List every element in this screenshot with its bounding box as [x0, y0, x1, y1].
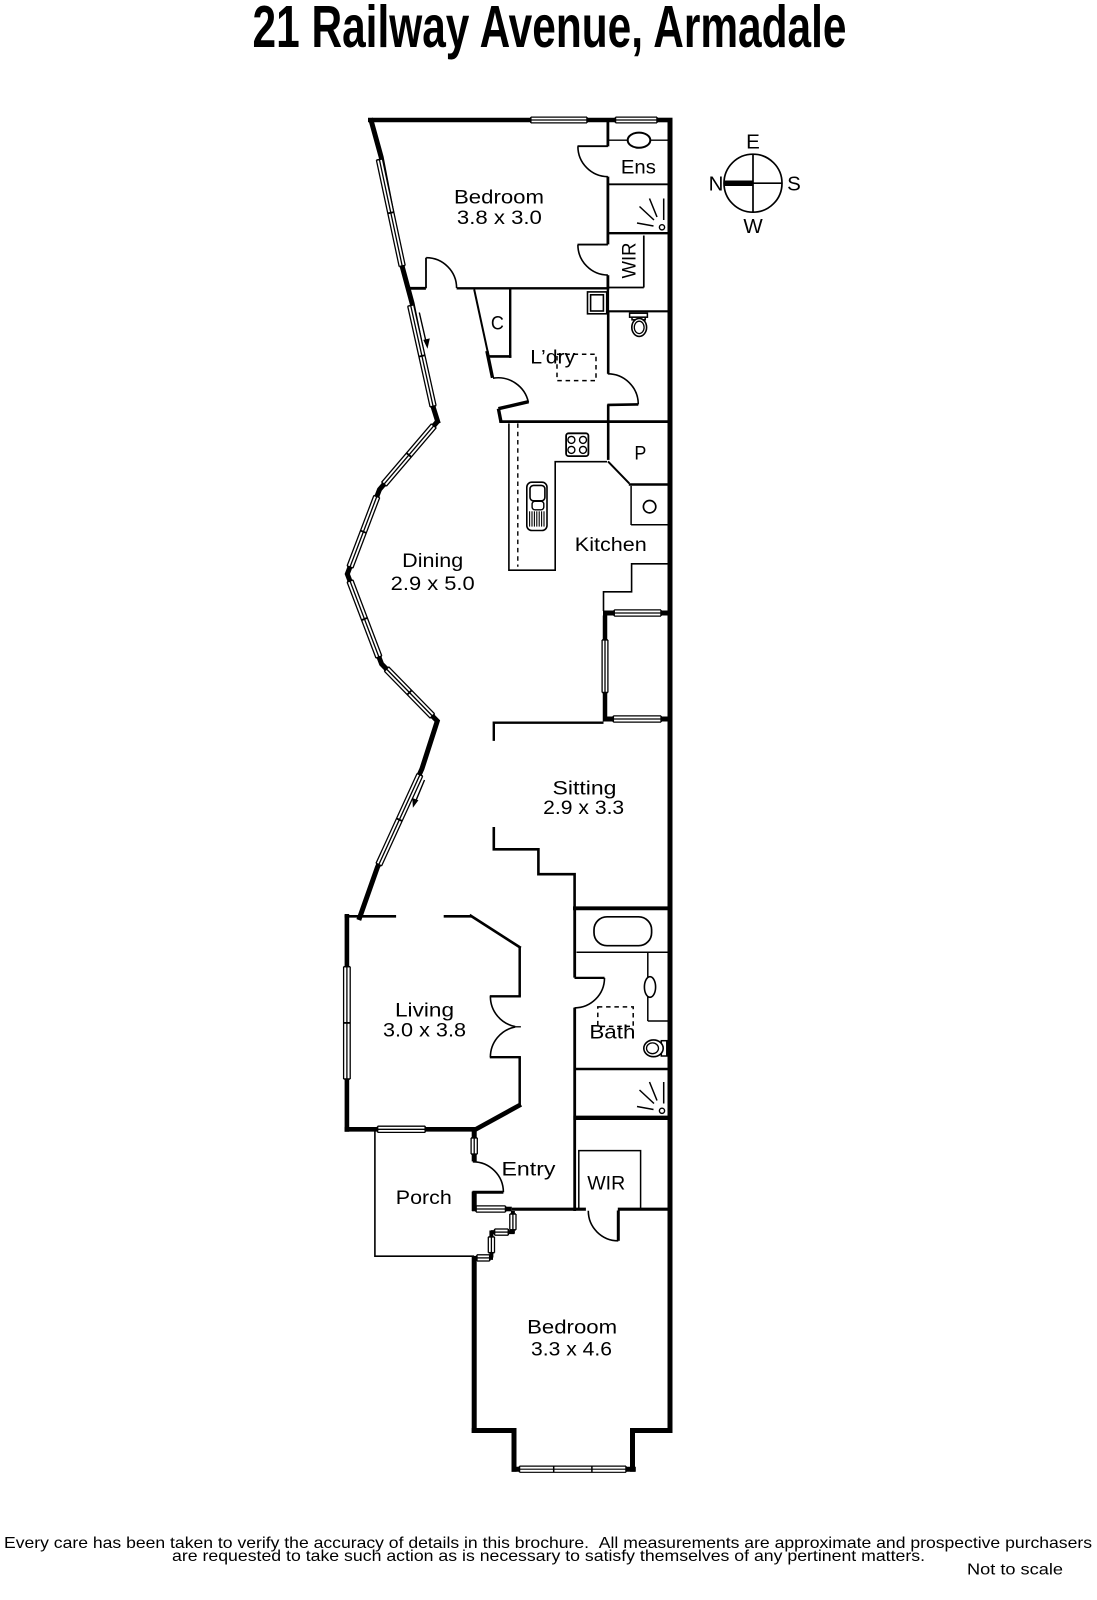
svg-text:C: C — [491, 313, 504, 335]
svg-text:WIR: WIR — [587, 1173, 625, 1195]
svg-text:S: S — [787, 173, 801, 196]
svg-text:Dining: Dining — [402, 550, 463, 572]
svg-text:Entry: Entry — [502, 1159, 556, 1181]
svg-text:3.3 x 4.6: 3.3 x 4.6 — [531, 1339, 612, 1361]
svg-text:Bedroom: Bedroom — [527, 1316, 617, 1338]
svg-text:Bath: Bath — [589, 1022, 635, 1044]
svg-text:2.9 x 3.3: 2.9 x 3.3 — [543, 797, 624, 819]
svg-text:N: N — [709, 173, 724, 196]
svg-text:WIR: WIR — [619, 243, 641, 279]
svg-text:L’dry: L’dry — [530, 346, 575, 368]
svg-text:Ens: Ens — [621, 157, 656, 179]
svg-text:E: E — [746, 130, 760, 153]
svg-text:21 Railway Avenue, Armadale: 21 Railway Avenue, Armadale — [253, 0, 847, 60]
svg-text:Bedroom: Bedroom — [454, 187, 544, 209]
svg-text:Not to scale: Not to scale — [967, 1562, 1063, 1579]
svg-text:are requested to take such act: are requested to take such action as is … — [172, 1548, 925, 1565]
svg-text:Living: Living — [395, 1000, 454, 1022]
svg-text:Porch: Porch — [396, 1187, 452, 1209]
svg-text:W: W — [743, 215, 763, 238]
svg-text:3.8 x 3.0: 3.8 x 3.0 — [457, 207, 542, 229]
svg-text:P: P — [634, 443, 646, 465]
svg-text:Kitchen: Kitchen — [575, 534, 647, 556]
svg-text:3.0 x 3.8: 3.0 x 3.8 — [383, 1020, 466, 1042]
svg-text:2.9 x 5.0: 2.9 x 5.0 — [391, 573, 475, 595]
